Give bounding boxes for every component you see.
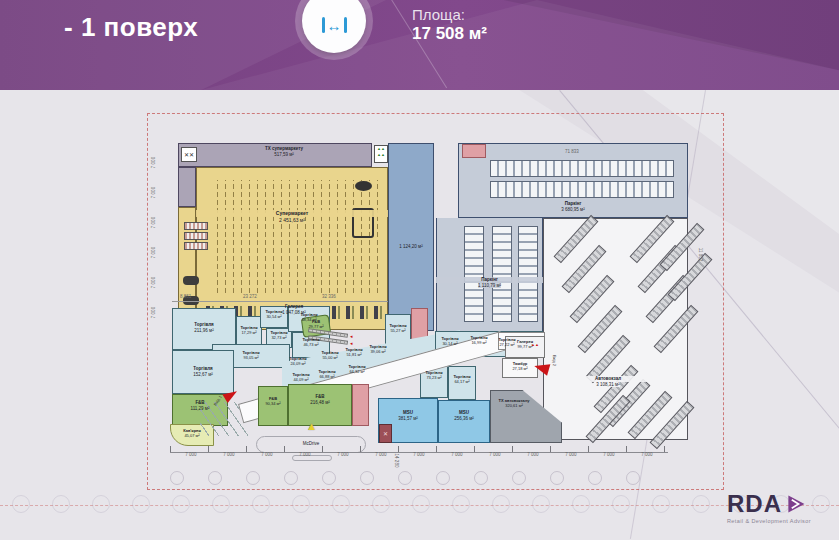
zone-fnb-3-label: F&B216,48 м²: [288, 394, 352, 406]
zone-tx-supermarket-wing: [178, 167, 196, 207]
retail-unit-7-label: Торгівля152,67 м²: [172, 366, 234, 378]
retail-unit-12-label: Торгівля44,09 м²: [288, 372, 314, 382]
stairs-box-icon: ▲▲▲▲: [374, 145, 388, 163]
gallery-small-arrows: ▲▲: [531, 342, 539, 347]
pink-block-east: [352, 384, 369, 426]
zone-gallery-small-label: Галерея99,77 м²: [505, 339, 545, 349]
grid-bubble: [474, 471, 488, 485]
retail-unit-13-label: Торгівля66,88 м²: [314, 369, 340, 379]
dim-label-bottom: 7 000: [590, 452, 628, 457]
retail-unit-10-label: Торгівля51,81 м²: [342, 347, 366, 357]
dim-top-right: 71 833: [565, 149, 579, 154]
dim-label-left: 7 000: [151, 187, 156, 198]
grid-bubble: [212, 495, 230, 513]
grid-bubble: [292, 495, 310, 513]
grid-bubble: [284, 471, 298, 485]
grid-bubble: [332, 495, 350, 513]
dim-right-side: 11 802: [698, 248, 703, 261]
grid-bubble: [132, 495, 150, 513]
width-arrows-icon: ↔: [322, 17, 347, 33]
parking-row-2: [490, 181, 674, 198]
grid-bubble: [532, 495, 550, 513]
grid-bubble: [412, 495, 430, 513]
grid-bubble: [572, 495, 590, 513]
cart-icon-1: [183, 276, 199, 285]
dim-label-left: 7 000: [151, 307, 156, 318]
rda-logo-text: RDA: [727, 492, 782, 516]
retail-unit-5-label: Торгівля46,73 м²: [292, 337, 330, 347]
dim-label-bottom: 7 000: [172, 452, 210, 457]
dim-label-left: 7 000: [151, 217, 156, 228]
grid-bubble: [512, 471, 526, 485]
retail-unit-2-label: Торгівля30,54 м²: [260, 309, 288, 319]
zone-fnb-4-label: F&B29,77 м²: [302, 319, 330, 329]
dim-line-mid: [172, 301, 388, 302]
grid-bubble: [398, 471, 412, 485]
header-banner: - 1 поверх ↔ Площа: 17 508 м²: [0, 0, 839, 90]
grid-bubble: [360, 471, 374, 485]
zone-parking-top-label: Паркінг3 680,95 м²: [458, 201, 688, 213]
zone-msu-1-label: MSU381,57 м²: [378, 410, 438, 422]
retail-unit-17-label: Торгівля16,99 м²: [466, 335, 492, 345]
parking-mid-col-2: [492, 226, 512, 322]
dim-label-left: 7 000: [151, 157, 156, 168]
grid-bubble: [246, 471, 260, 485]
entrance-2-label: Вхід 2: [552, 355, 557, 366]
grid-bubble: [92, 495, 110, 513]
grid-bubble: [436, 471, 450, 485]
zone-msu-2-label: MSU256,36 м²: [438, 410, 490, 422]
zone-cafe-label: Кав'ярня45,07 м²: [170, 428, 214, 438]
zone-bus-terminal-label: Автовокзал 3 108,31 м²: [558, 376, 658, 388]
zone-fnb-2-label: F&B90,34 м²: [258, 396, 288, 406]
grid-bubble: [812, 495, 830, 513]
parking-pink-block: [462, 144, 486, 158]
zone-mcdrive-label: McDrive: [256, 441, 366, 447]
dim-bottom-vertical: 14 280: [394, 454, 399, 468]
retail-unit-20-label: Торгівля64,17 м²: [448, 374, 476, 384]
grid-bubble: [492, 495, 510, 513]
retail-unit-14-label: Торгівля64,32 м²: [344, 364, 370, 374]
dim-label-left: 7 000: [151, 277, 156, 288]
drive-triangle-marker: ▲: [306, 420, 317, 432]
dim-label-bottom: 7 000: [514, 452, 552, 457]
parking-row-1: [490, 160, 674, 177]
dim-label-left: 7 000: [151, 247, 156, 258]
area-value: 17 508 м²: [412, 24, 487, 44]
grid-bubble: [170, 471, 184, 485]
zone-supermarket-label: Супермаркет 2 451,63 м²: [196, 210, 388, 223]
retail-unit-8-label: Торгівля24,09 м²: [284, 356, 312, 366]
lift-block-icon: ✕: [379, 424, 392, 443]
dim-label-bottom: 7 000: [248, 452, 286, 457]
grid-bubble: [322, 471, 336, 485]
elevator-icon: ✕✕: [181, 147, 197, 162]
dim-label-bottom: 7 000: [552, 452, 590, 457]
grid-bubble: [172, 495, 190, 513]
zone-tx-bus-label: ТХ автовокзалу320,61 м²: [488, 398, 540, 408]
dim-label-bottom: 7 000: [324, 452, 362, 457]
grid-bubble: [208, 471, 222, 485]
zone-ramp: [388, 143, 434, 331]
area-label: Площа:: [412, 6, 465, 23]
dim-mid-3: 32 336: [322, 294, 336, 299]
rda-logo-icon: [785, 493, 807, 515]
escalator-arrow-2: ◂: [350, 340, 353, 346]
grid-bubble: [12, 495, 30, 513]
grid-bubble: [252, 495, 270, 513]
parking-mid-col-3: [518, 226, 538, 322]
dim-mid-2: 23 272: [243, 294, 257, 299]
retail-unit-16-label: Торгівля30,14 м²: [436, 336, 464, 346]
retail-unit-9-label: Торгівля55,00 м²: [318, 350, 342, 360]
dim-mid-1: 8 861: [180, 294, 191, 299]
grid-bubble: [588, 471, 602, 485]
dim-label-bottom: 7 000: [286, 452, 324, 457]
grid-bubble: [652, 495, 670, 513]
grid-bubble: [52, 495, 70, 513]
grid-bubble: [626, 471, 640, 485]
shelf-icon-1: [184, 222, 208, 230]
dim-label-bottom: 7 000: [476, 452, 514, 457]
shelf-icon-2: [184, 232, 208, 240]
area-badge-circle: ↔: [302, 0, 366, 53]
dim-label-bottom: 7 000: [400, 452, 438, 457]
grid-bubble: [612, 495, 630, 513]
zone-tx-supermarket-label: ТХ супермаркету517,59 м²: [196, 146, 372, 158]
retail-unit-19-label: Торгівля73,23 м²: [420, 370, 448, 380]
retail-unit-0-label: Торгівля211,96 м²: [172, 322, 236, 334]
parking-mid-col-1: [464, 226, 484, 322]
shelf-icon-3: [184, 242, 208, 250]
grid-bubble: [452, 495, 470, 513]
supermarket-shelving: [210, 180, 382, 296]
escalator-arrow-1: ◂: [350, 333, 353, 339]
rda-logo-tagline: Retail & Development Advisor: [727, 518, 811, 524]
zone-ramp-label: 1 124,20 м²: [388, 244, 434, 250]
retail-unit-6-label: Торгівля93,05 м²: [212, 350, 290, 360]
dim-label-bottom: 7 000: [628, 452, 666, 457]
retail-unit-3-label: Торгівля32,73 м²: [266, 330, 292, 340]
rda-logo: RDA Retail & Development Advisor: [727, 492, 811, 524]
retail-unit-11-label: Торгівля39,06 м²: [366, 344, 390, 354]
retail-unit-15-label: Торгівля55,27 м²: [385, 323, 411, 333]
zone-parking-mid-label: Паркінг 1 110,79 м²: [436, 277, 543, 289]
grid-bubble: [372, 495, 390, 513]
grid-bubble: [550, 471, 564, 485]
dim-label-bottom: 7 000: [210, 452, 248, 457]
retail-unit-1-label: Торгівля17,29 м²: [236, 325, 262, 335]
dim-label-bottom: 7 000: [438, 452, 476, 457]
rack-oval-icon: [355, 181, 372, 191]
grid-bubble: [692, 495, 710, 513]
page-title: - 1 поверх: [64, 12, 198, 43]
